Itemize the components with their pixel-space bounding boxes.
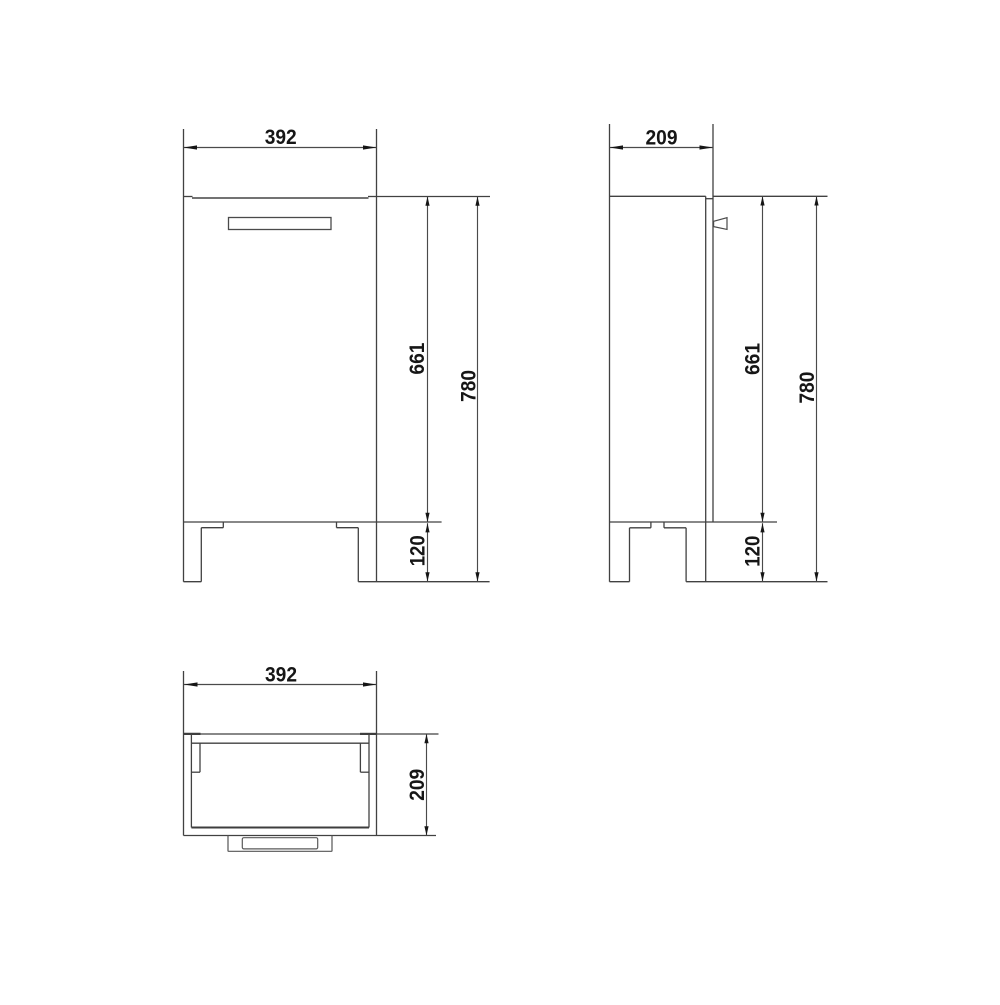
svg-text:780: 780	[796, 372, 819, 404]
svg-text:209: 209	[646, 127, 678, 150]
svg-text:661: 661	[406, 342, 429, 374]
svg-text:661: 661	[742, 343, 765, 375]
svg-text:392: 392	[265, 663, 297, 686]
svg-text:209: 209	[406, 769, 429, 801]
svg-text:392: 392	[265, 126, 297, 149]
svg-text:780: 780	[458, 370, 481, 402]
svg-text:120: 120	[742, 536, 765, 567]
svg-text:120: 120	[407, 535, 430, 566]
